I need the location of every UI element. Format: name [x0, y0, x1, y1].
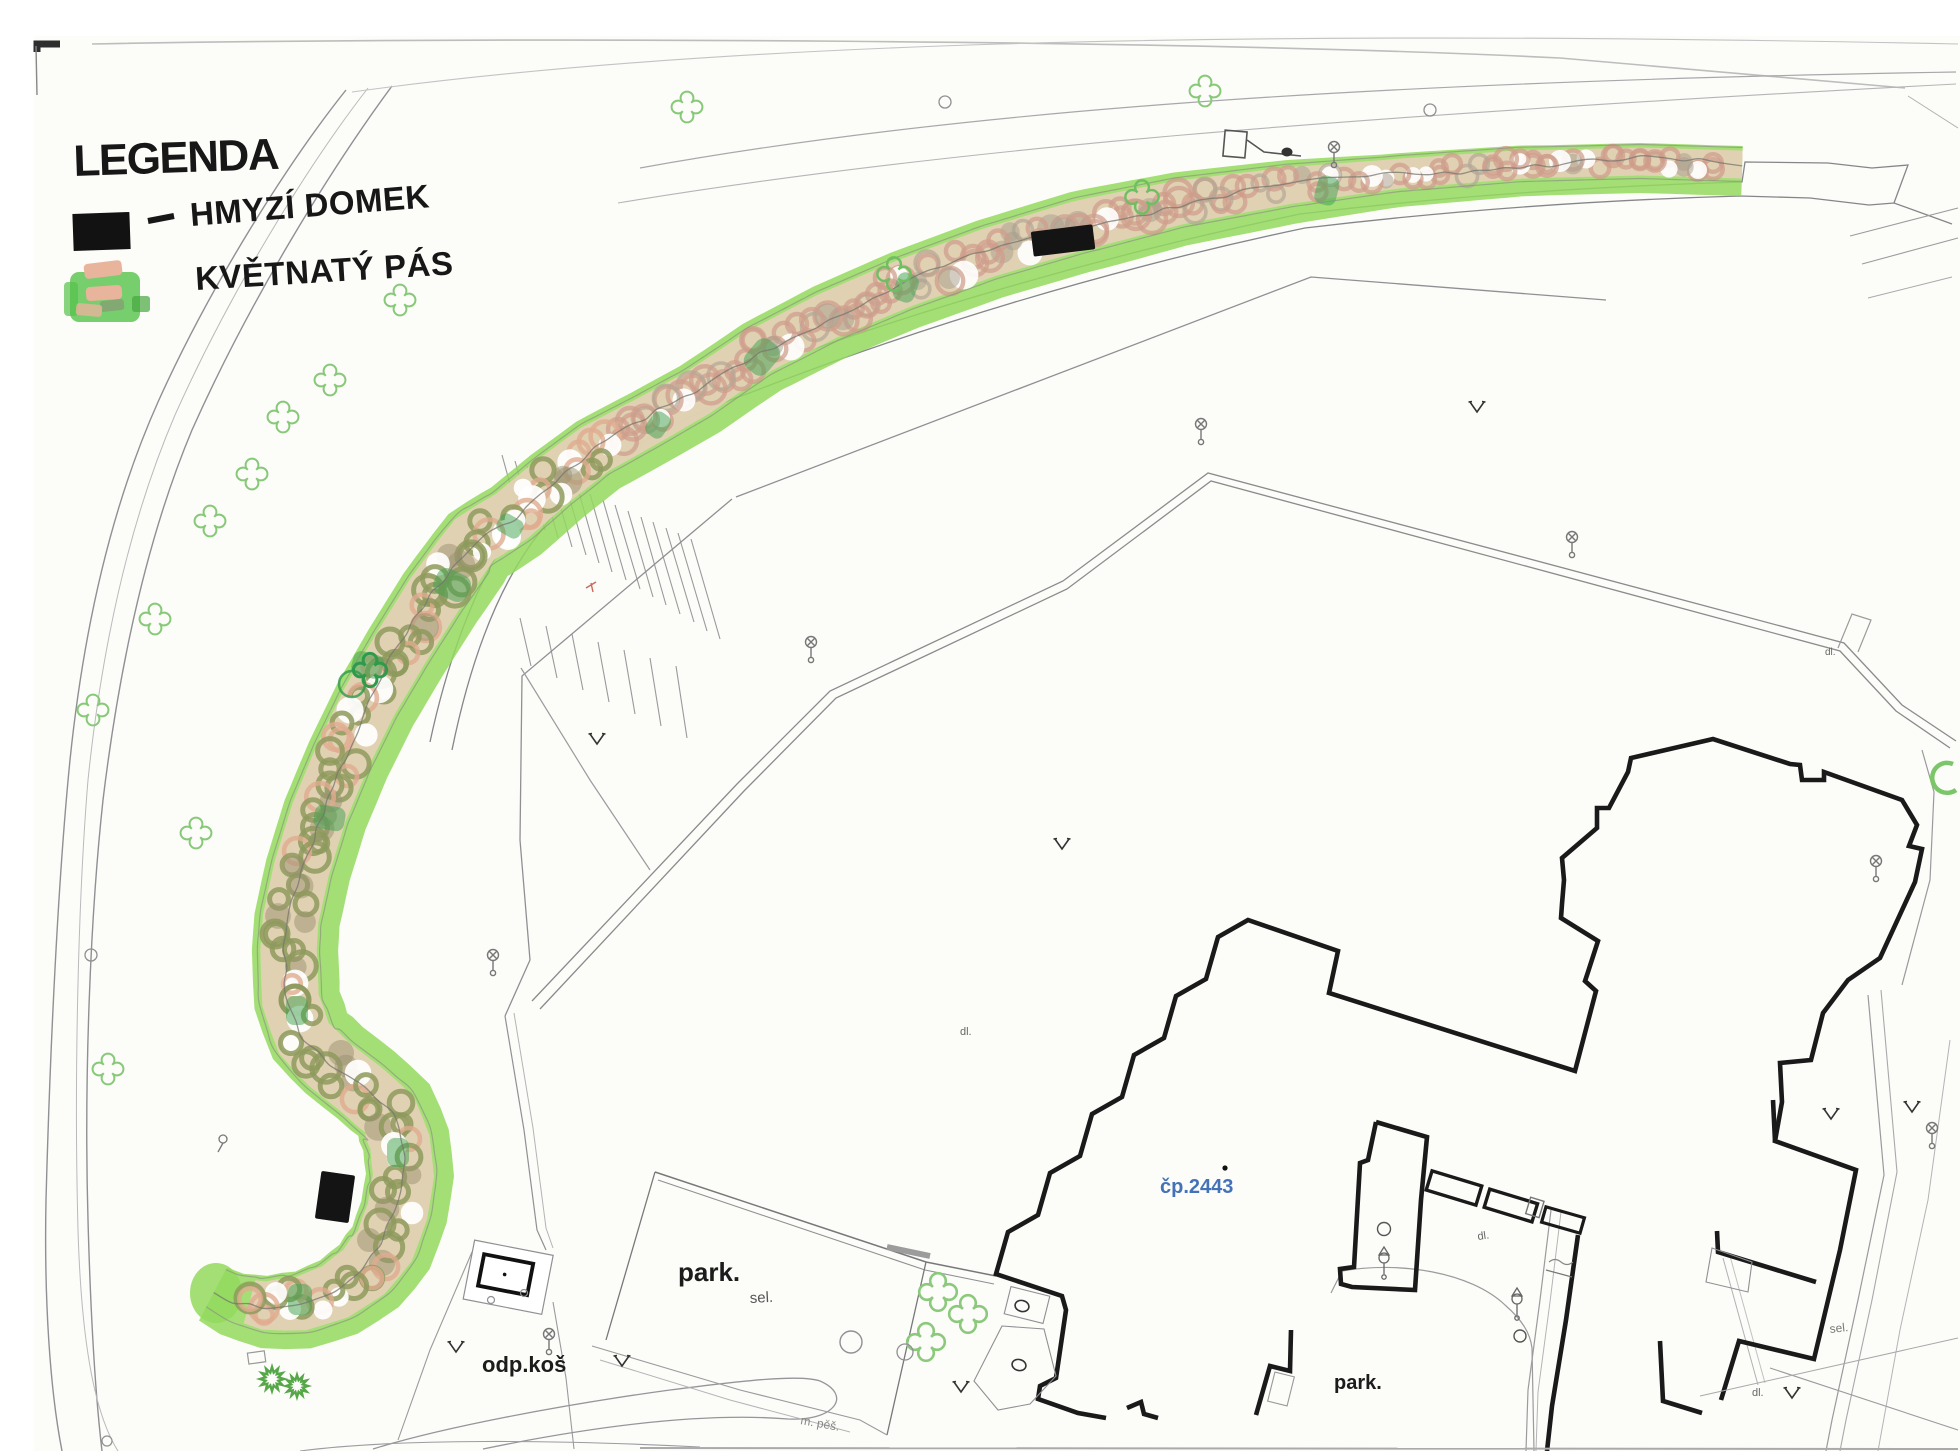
svg-text:dl.: dl. [1825, 647, 1836, 658]
svg-text:sel.: sel. [749, 1289, 773, 1307]
svg-text:sel.: sel. [1829, 1320, 1849, 1336]
svg-text:dl.: dl. [1477, 1229, 1490, 1243]
svg-text:park.: park. [678, 1257, 740, 1287]
svg-text:čp.2443: čp.2443 [1160, 1176, 1233, 1198]
svg-text:odp.koš: odp.koš [482, 1352, 566, 1377]
svg-text:LEGENDA: LEGENDA [73, 130, 280, 186]
svg-text:dl.: dl. [1752, 1387, 1764, 1399]
svg-text:dl.: dl. [960, 1026, 972, 1038]
svg-text:park.: park. [1334, 1372, 1382, 1394]
